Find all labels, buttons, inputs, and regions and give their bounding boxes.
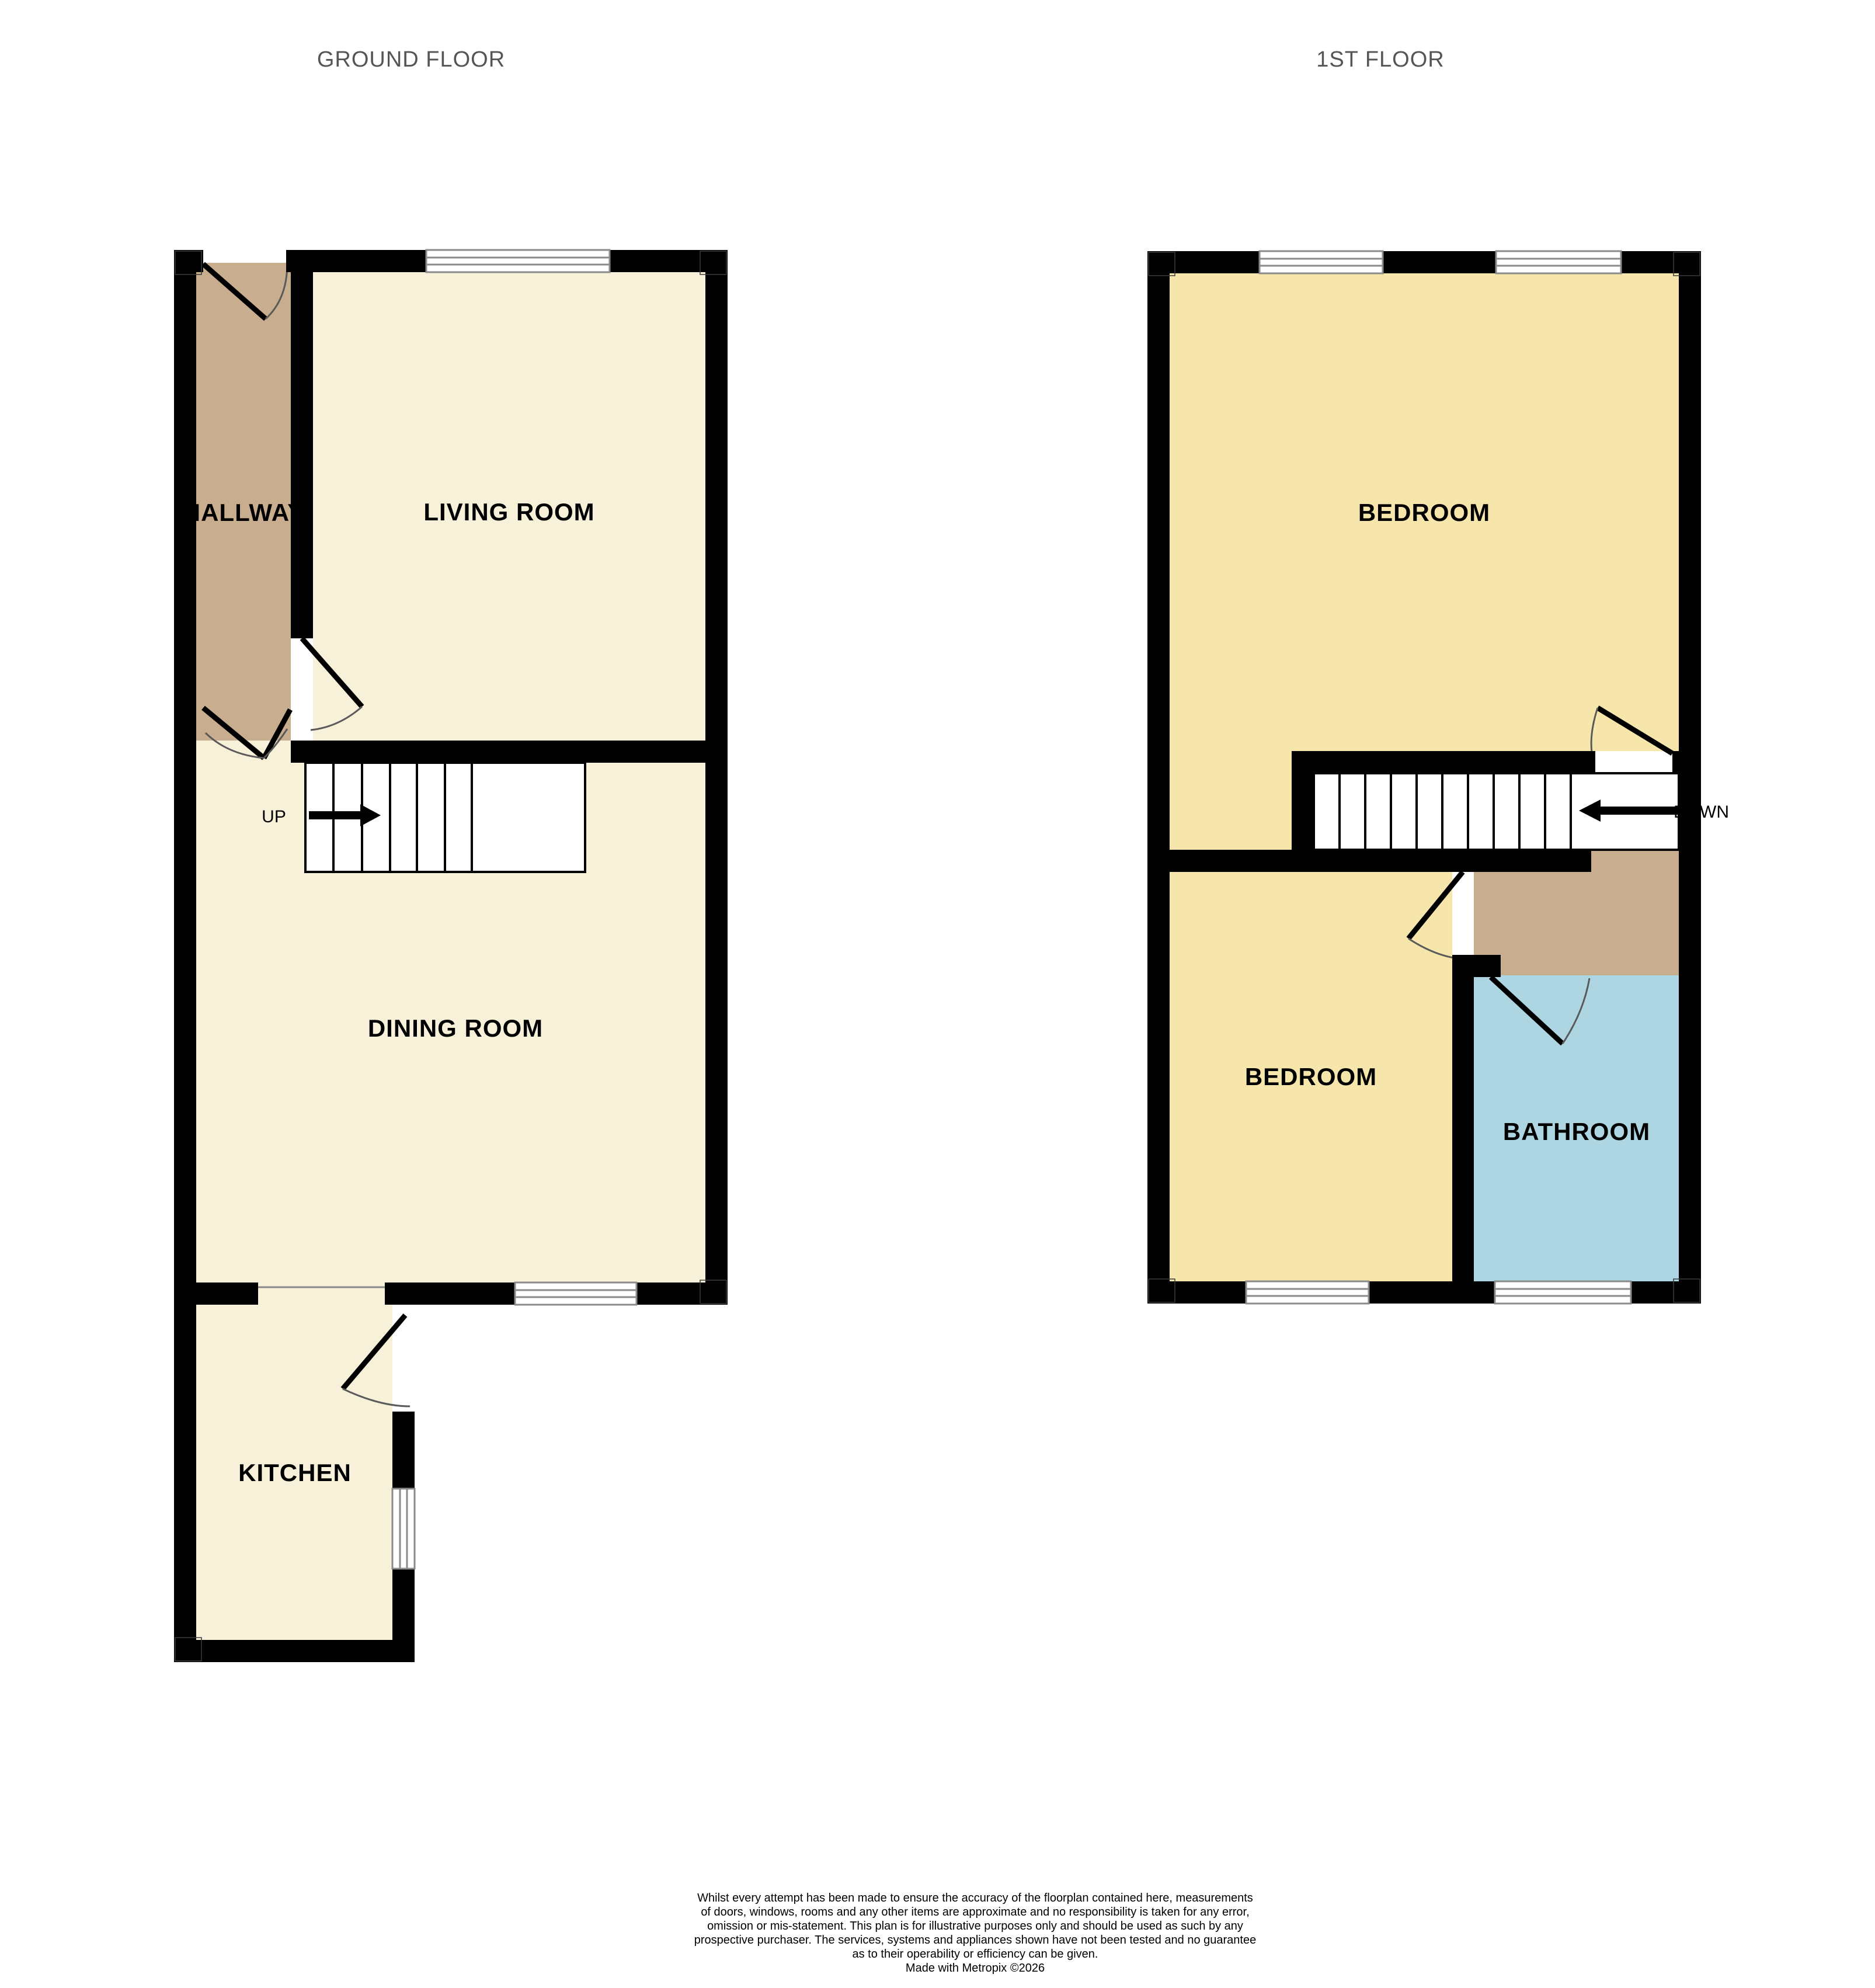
- landing: [1474, 872, 1679, 975]
- label-dining-room: DINING ROOM: [368, 1014, 543, 1042]
- landing-strip: [1591, 850, 1679, 872]
- window-bedroom-1-left: [1260, 251, 1383, 273]
- disclaimer-line: Whilst every attempt has been made to en…: [590, 1891, 1361, 1905]
- disclaimer-line: of doors, windows, rooms and any other i…: [590, 1905, 1361, 1919]
- disclaimer: Whilst every attempt has been made to en…: [590, 1891, 1361, 1975]
- window-dining-room: [515, 1283, 636, 1305]
- ground-floor-title: GROUND FLOOR: [317, 47, 505, 72]
- label-bedroom-2: BEDROOM: [1245, 1063, 1377, 1090]
- label-bathroom: BATHROOM: [1503, 1118, 1650, 1145]
- label-bedroom-1: BEDROOM: [1358, 499, 1490, 526]
- disclaimer-line: as to their operability or efficiency ca…: [590, 1947, 1361, 1961]
- room-bedroom-1-wrap: [1170, 751, 1292, 850]
- window-bathroom: [1495, 1281, 1631, 1304]
- first-floor-plan: DOWN BEDROOM BEDROOM BATHROOM: [1147, 251, 1729, 1304]
- up-label: UP: [262, 807, 286, 826]
- disclaimer-line: prospective purchaser. The services, sys…: [590, 1933, 1361, 1947]
- window-living-room: [426, 250, 610, 272]
- disclaimer-line: omission or mis-statement. This plan is …: [590, 1919, 1361, 1933]
- disclaimer-credit: Made with Metropix ©2026: [590, 1961, 1361, 1975]
- label-living-room: LIVING ROOM: [423, 498, 594, 526]
- window-bedroom-1-right: [1496, 251, 1621, 273]
- staircase-ground: [305, 763, 585, 872]
- label-hallway: HALLWAY: [183, 499, 304, 526]
- ground-floor-plan: UP HALLWAY LIVING ROOM DINING ROOM KITCH…: [174, 250, 728, 1662]
- floorplan-svg: UP HALLWAY LIVING ROOM DINING ROOM KITCH…: [0, 0, 1875, 1988]
- first-floor-title: 1ST FLOOR: [1316, 47, 1444, 72]
- staircase-first: [1314, 773, 1679, 850]
- window-bedroom-2: [1246, 1281, 1369, 1304]
- window-kitchen: [392, 1489, 415, 1569]
- label-kitchen: KITCHEN: [238, 1459, 352, 1486]
